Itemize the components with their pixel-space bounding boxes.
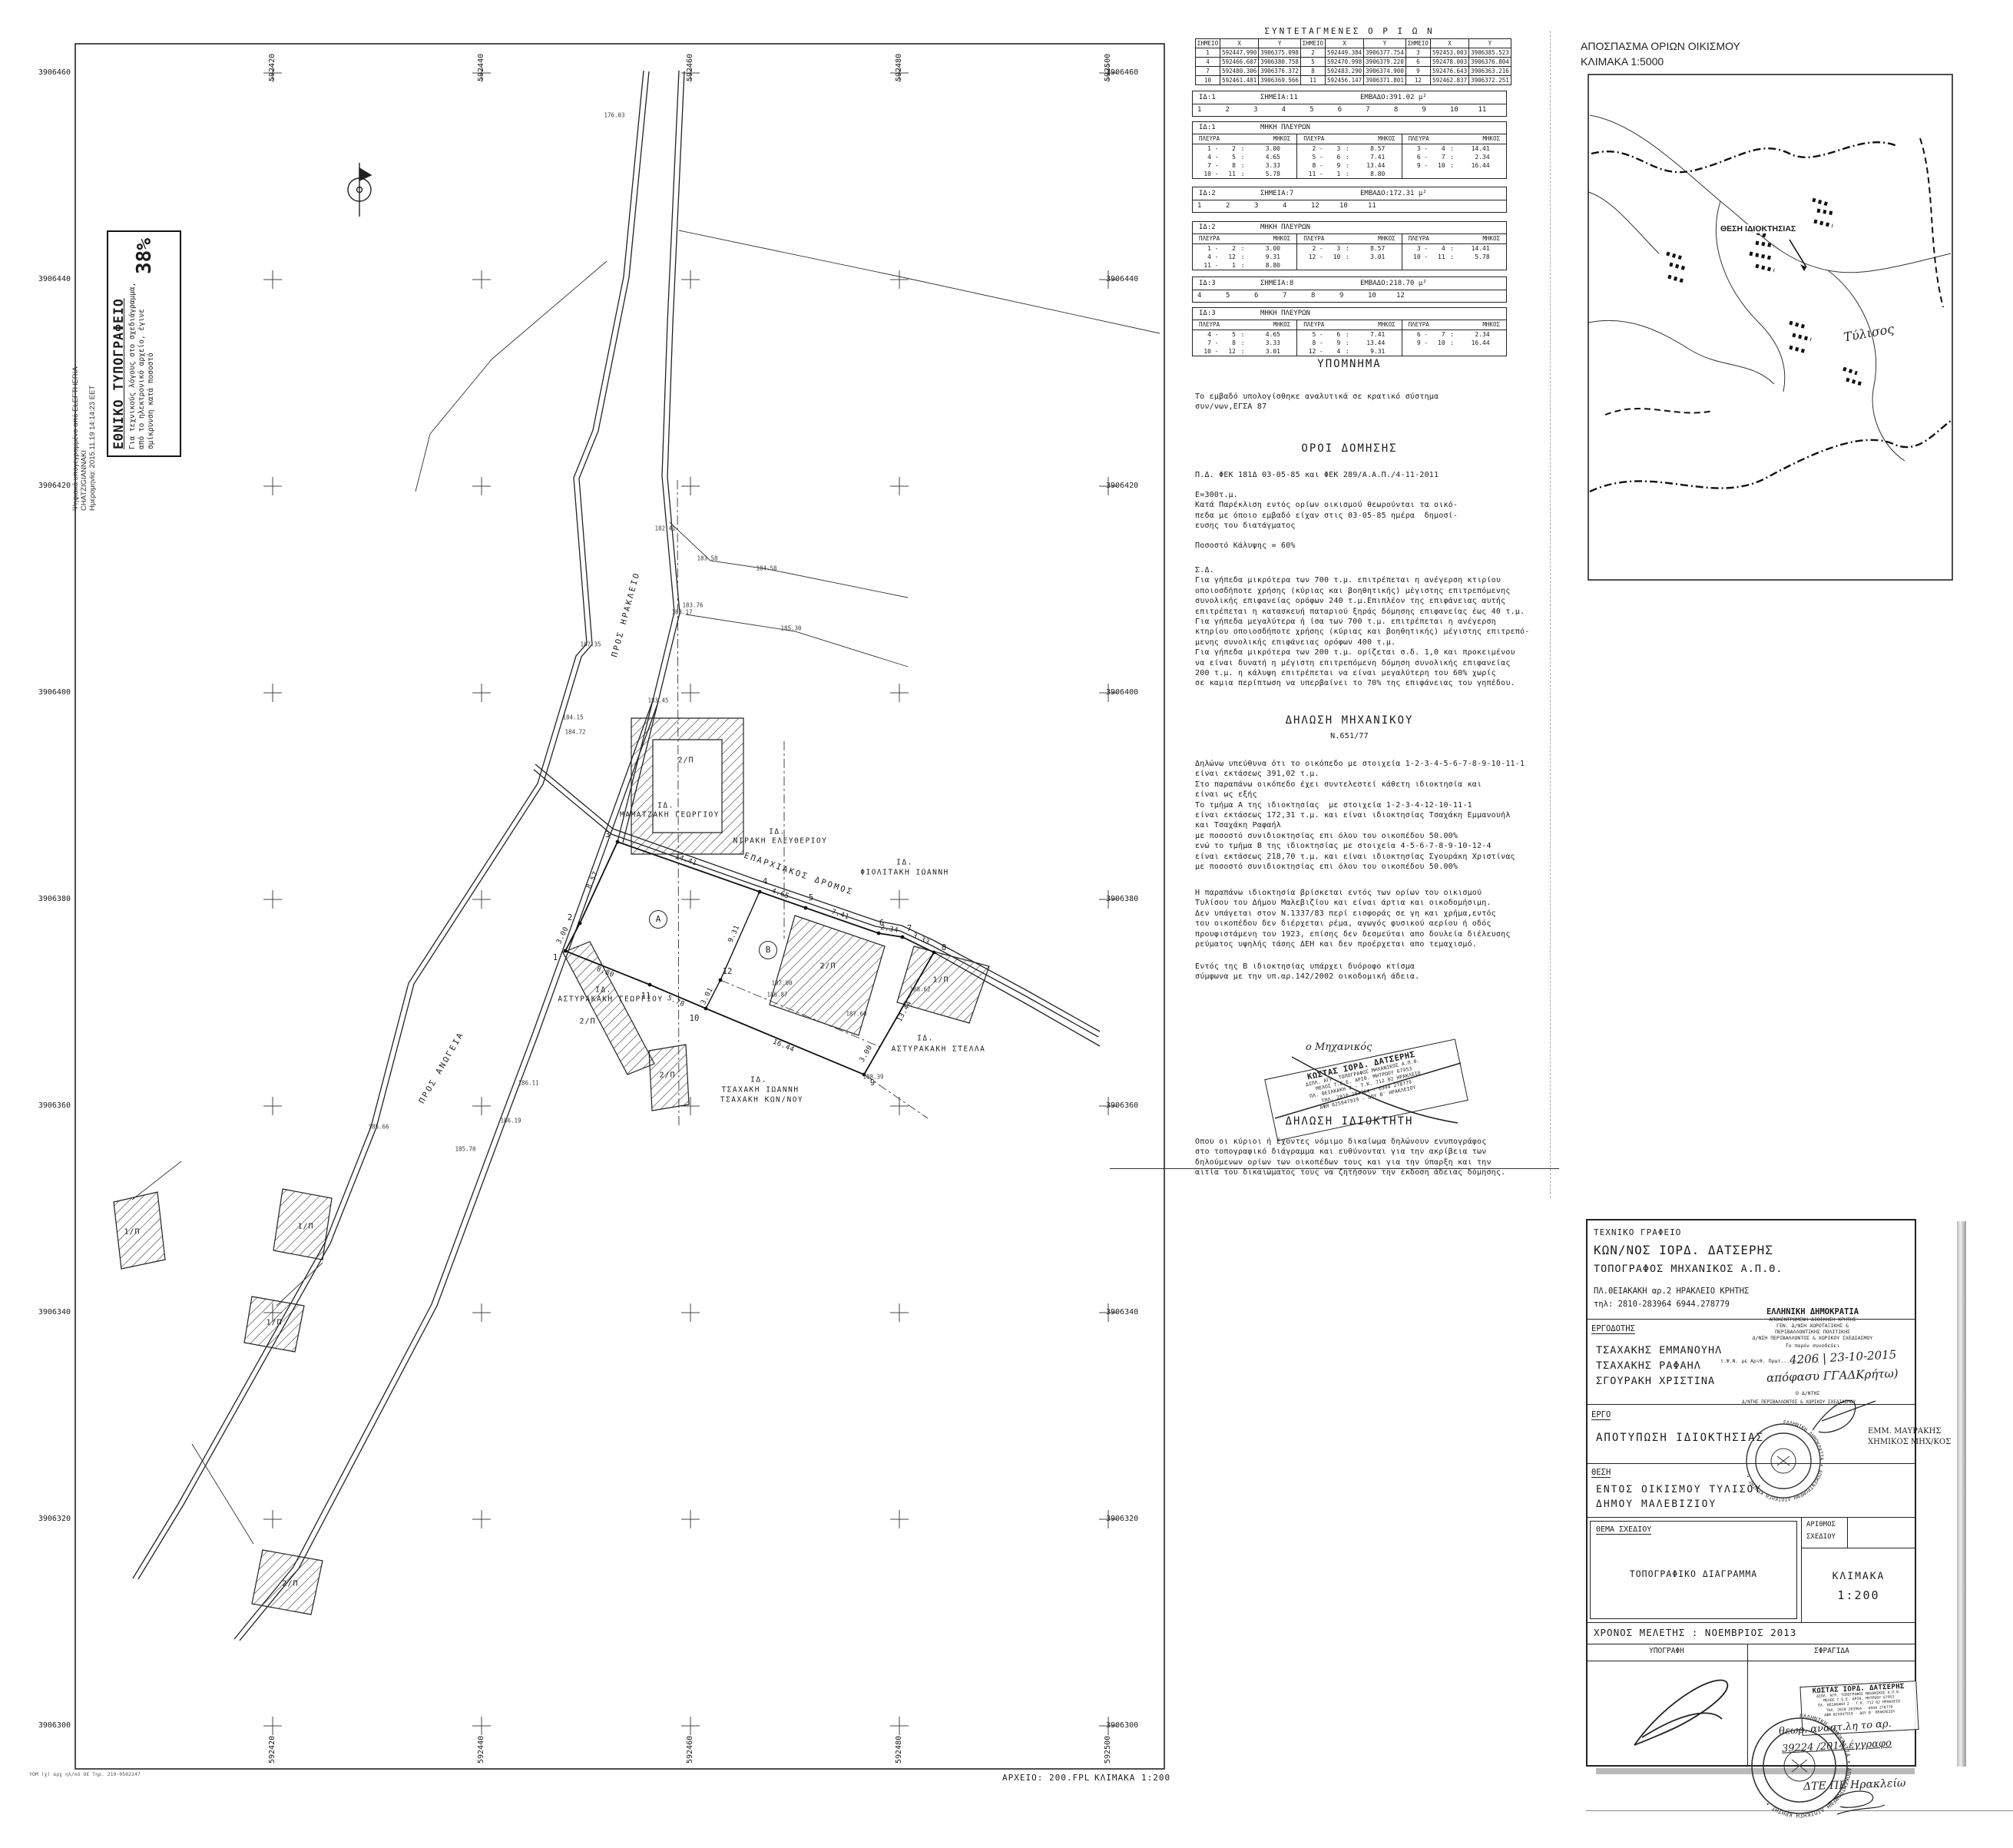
stamps-and-signatures: ΕΛΛΗΝΙΚΗ ΔΗΜΟΚΡΑΤΙΑ • ΑΠΟΚΕΝΤΡΩΜΕΝΗ ΔΙΟΙ… [0,0,2013,1848]
stamp-ring-text: ΕΛΛΗΝΙΚΗ ΔΗΜΟΚΡΑΤΙΑ • ΑΠΟΚΕΝΤΡΩΜΕΝΗ ΔΙΟΙ… [1764,1713,1852,1819]
stamp-ring-text: ΕΛΛΗΝΙΚΗ ΔΗΜΟΚΡΑΤΙΑ • ΑΠΟΚΕΝΤΡΩΜΕΝΗ ΔΙΟΙ… [1745,1419,1825,1502]
scanned-topographic-sheet: 123456789101112ΑΒΠΡΟΣ ΗΡΑΚΛΕΙΟΕΠΑΡΧΙΑΚΟΣ… [0,0,2013,1848]
